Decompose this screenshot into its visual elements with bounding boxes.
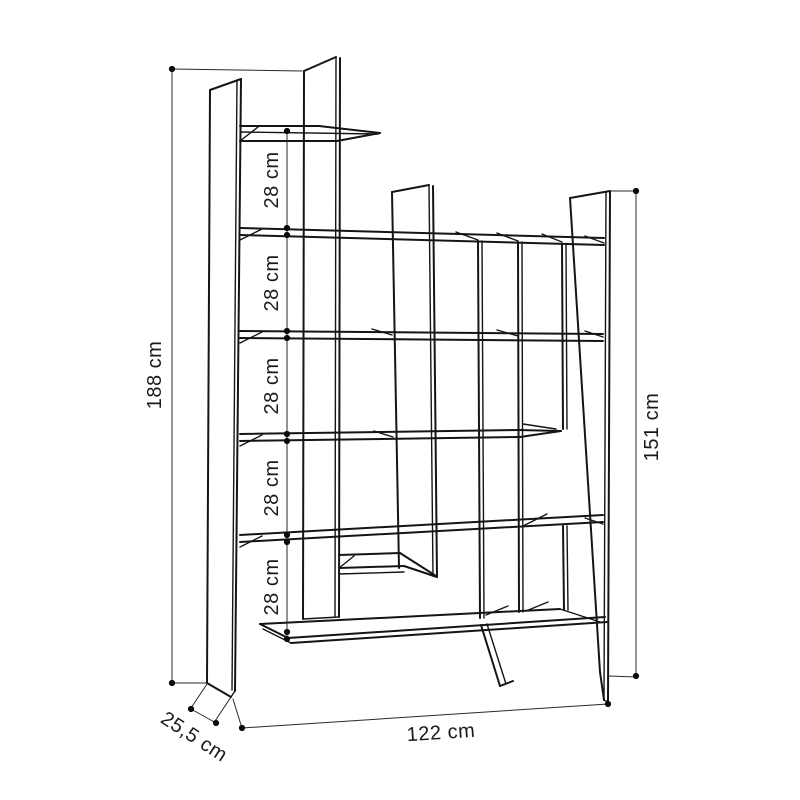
inner-divider-1: [478, 241, 513, 686]
right-side-panel: [570, 191, 610, 702]
label-shelf-gap-3: 28 cm: [261, 358, 283, 415]
top-small-shelf: [240, 126, 380, 141]
technical-drawing-page: 188 cm 28 cm 28 cm 28 cm 28 cm 28 cm: [0, 0, 800, 800]
label-shelf-gap-5: 28 cm: [261, 559, 283, 616]
label-shelf-gap-4: 28 cm: [261, 460, 283, 517]
dimension-depth: 25,5 cm: [157, 684, 232, 767]
inner-divider-3: [562, 244, 568, 610]
half-shelf-middle: [339, 553, 437, 577]
label-overall-height: 188 cm: [144, 341, 166, 410]
label-shelf-gap-2: 28 cm: [261, 255, 283, 312]
shelf-row-2: [240, 228, 604, 245]
inner-divider-2: [518, 242, 523, 612]
shelf-row-5: [240, 514, 603, 547]
label-depth: 25,5 cm: [157, 707, 232, 766]
shelf-row-3: [240, 329, 603, 343]
left-side-panel: [207, 79, 241, 697]
center-tall-divider: [392, 185, 437, 577]
label-shelf-gap-1: 28 cm: [261, 152, 283, 209]
label-inner-height: 151 cm: [641, 393, 663, 462]
dimension-overall-width: 122 cm: [233, 699, 611, 746]
bookcase-technical-drawing: 188 cm 28 cm 28 cm 28 cm 28 cm 28 cm: [0, 0, 800, 800]
bottom-shelf: [260, 602, 607, 643]
dimension-shelf-gaps: 28 cm 28 cm 28 cm 28 cm 28 cm: [261, 128, 290, 642]
label-overall-width: 122 cm: [406, 720, 476, 746]
dimension-inner-height: 151 cm: [609, 188, 663, 679]
